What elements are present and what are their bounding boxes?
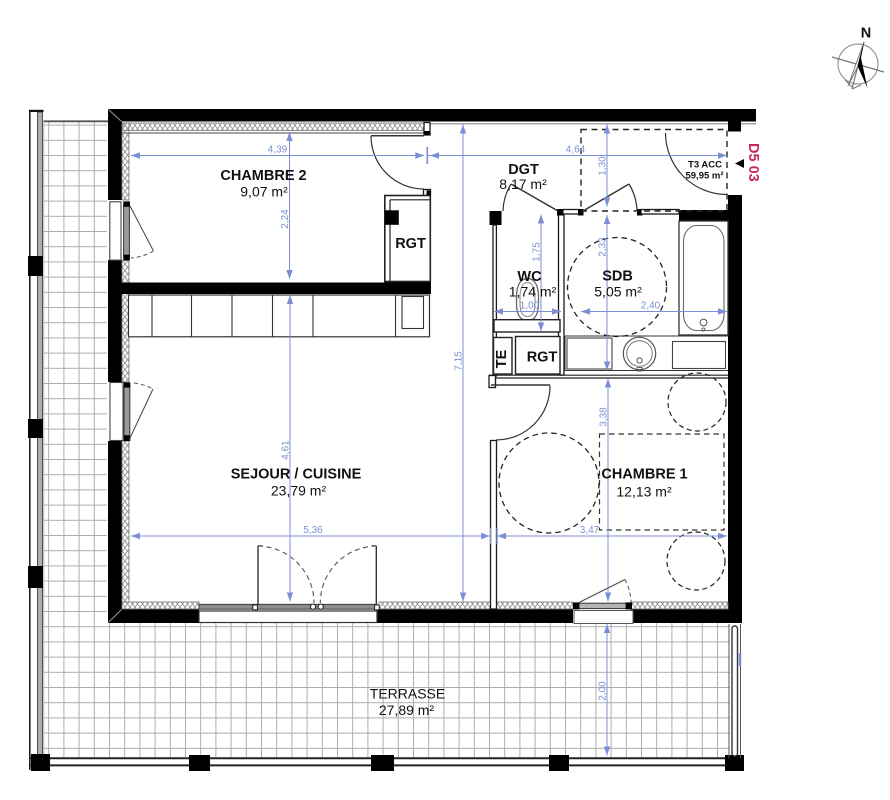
svg-text:5,05 m²: 5,05 m² [594,284,642,300]
svg-text:2,40: 2,40 [641,301,661,312]
svg-text:CHAMBRE 1: CHAMBRE 1 [601,467,687,483]
svg-text:TE: TE [494,349,510,368]
svg-text:SEJOUR / CUISINE: SEJOUR / CUISINE [231,467,362,483]
svg-text:3,38: 3,38 [599,407,610,427]
svg-text:1,00: 1,00 [520,301,540,312]
svg-text:2,33: 2,33 [598,237,609,257]
svg-text:2,00: 2,00 [598,681,609,701]
svg-text:N: N [861,26,871,42]
svg-text:23,79 m²: 23,79 m² [271,483,327,499]
svg-text:27,89 m²: 27,89 m² [379,702,435,718]
svg-text:T3 ACC: T3 ACC [688,160,722,171]
svg-text:1,74 m²: 1,74 m² [509,284,557,300]
svg-text:9,07 m²: 9,07 m² [240,184,288,200]
svg-text:5,36: 5,36 [303,525,323,536]
svg-text:2,24: 2,24 [280,209,291,229]
svg-text:7,15: 7,15 [454,351,465,371]
svg-text:D5 03: D5 03 [745,143,761,182]
svg-text:3,47: 3,47 [580,525,600,536]
svg-text:TERRASSE: TERRASSE [370,686,445,702]
svg-text:RGT: RGT [527,350,558,366]
svg-text:4,61: 4,61 [281,440,292,460]
svg-text:RGT: RGT [395,236,426,252]
svg-text:SDB: SDB [602,269,633,285]
svg-text:CHAMBRE 2: CHAMBRE 2 [220,168,306,184]
svg-text:8,17 m²: 8,17 m² [499,176,547,192]
svg-text:59,95 m²: 59,95 m² [685,171,723,182]
svg-text:1,30: 1,30 [598,156,609,176]
svg-text:4,39: 4,39 [268,145,288,156]
svg-text:1,75: 1,75 [532,242,543,262]
svg-text:4,64: 4,64 [566,145,586,156]
svg-text:12,13 m²: 12,13 m² [616,484,672,500]
